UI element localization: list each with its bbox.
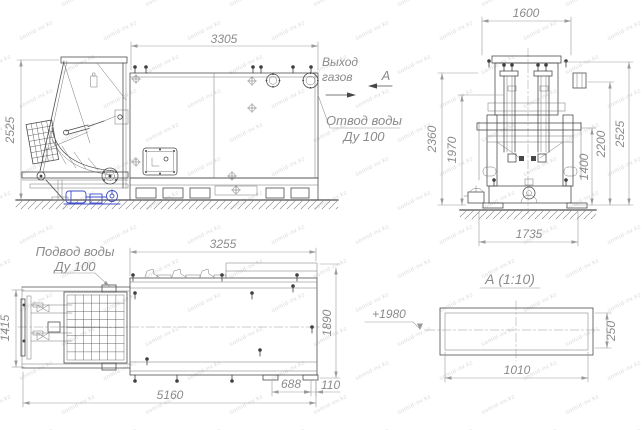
- pump-unit: [64, 190, 120, 204]
- dim-section-height-label: 250: [604, 321, 618, 342]
- crusher-body: [130, 73, 318, 178]
- section-cut-arrow: [368, 83, 392, 88]
- tipper-unit: [22, 57, 128, 200]
- guide-top-bolts: [502, 63, 548, 71]
- plan-inner-bolts: [133, 284, 314, 383]
- base-plinth: [130, 178, 318, 200]
- front-mechanism: [508, 154, 546, 203]
- dim-plan-left-label: 1415: [0, 314, 12, 341]
- technical-drawing: 3305 2525 Выход газов А Отвод воды Ду 10…: [0, 0, 644, 430]
- dim-front-top: [482, 17, 571, 55]
- gas-outlet-flanges: [266, 72, 319, 88]
- section-mark-label: А: [381, 68, 391, 83]
- front-frame: [477, 115, 581, 186]
- section-view: А (1:10) +1980 1010 250: [365, 271, 618, 382]
- dim-front-right-mid-label: 2200: [594, 130, 608, 158]
- front-hopper-box: [488, 56, 565, 115]
- dim-side-width: [131, 42, 318, 70]
- grate-top-view: [64, 285, 127, 370]
- base-mark: [232, 186, 241, 195]
- dim-plan-top-label: 3255: [210, 237, 237, 251]
- elevation-label: +1980: [372, 307, 406, 321]
- dim-foot-offset-label: 110: [321, 378, 340, 392]
- inspection-door: [143, 148, 177, 175]
- water-outlet-label-1: Отвод воды: [326, 113, 402, 128]
- guide-rods: [500, 71, 552, 152]
- dim-front-top-label: 1600: [513, 6, 540, 20]
- plan-hinges: [145, 269, 226, 278]
- front-base: [483, 186, 587, 208]
- side-view: 3305 2525 Выход газов А Отвод воды Ду 10…: [3, 32, 402, 209]
- gas-outlet-label-2: газов: [322, 70, 353, 84]
- plan-body: [130, 263, 317, 375]
- water-inlet-label-1: Подвод воды: [36, 244, 115, 259]
- vent-marks: [132, 75, 257, 181]
- front-pump: [464, 186, 484, 203]
- body-top-bolts: [133, 65, 313, 73]
- dim-plan-top: [130, 248, 316, 276]
- dim-plan-right-label: 1890: [320, 309, 334, 336]
- dim-side-width-label: 3305: [211, 32, 238, 46]
- plan-top-bolts: [131, 273, 299, 281]
- dim-front-right-inner-label: 1400: [577, 153, 591, 180]
- elevation-mark: [365, 322, 423, 330]
- section-duct: [440, 308, 593, 355]
- dim-front-bottom-label: 1735: [516, 227, 543, 241]
- ground-hatch: [16, 200, 338, 209]
- plan-view: 3255 1890 1415 5160 688 110 Подвод воды …: [0, 237, 340, 407]
- drawing-sheet: somid-nv.kzsomid-nv.kzsomid-nv.kzsomid-n…: [0, 0, 644, 430]
- carriage: [22, 168, 128, 200]
- dim-section-width-label: 1010: [504, 363, 531, 377]
- section-title: А (1:10): [484, 271, 535, 287]
- water-inlet-label-2: Ду 100: [52, 259, 96, 274]
- dim-front-left-inner-label: 1970: [445, 136, 459, 163]
- dim-front-right-outer-label: 2525: [613, 120, 627, 148]
- gas-flow-arrow: [326, 92, 356, 97]
- dim-plan-bottom-label: 5160: [157, 388, 184, 402]
- front-view: 1600 2360 1970 1400 2200 2525 1735: [425, 6, 633, 246]
- front-gas-stub: [573, 73, 586, 88]
- dim-side-height-label: 2525: [3, 116, 17, 144]
- gas-outlet-label-1: Выход: [322, 55, 358, 69]
- dim-foot-spacing-label: 688: [281, 377, 301, 391]
- water-outlet-label-2: Ду 100: [341, 129, 385, 144]
- dim-front-left-outer-label: 2360: [425, 125, 439, 153]
